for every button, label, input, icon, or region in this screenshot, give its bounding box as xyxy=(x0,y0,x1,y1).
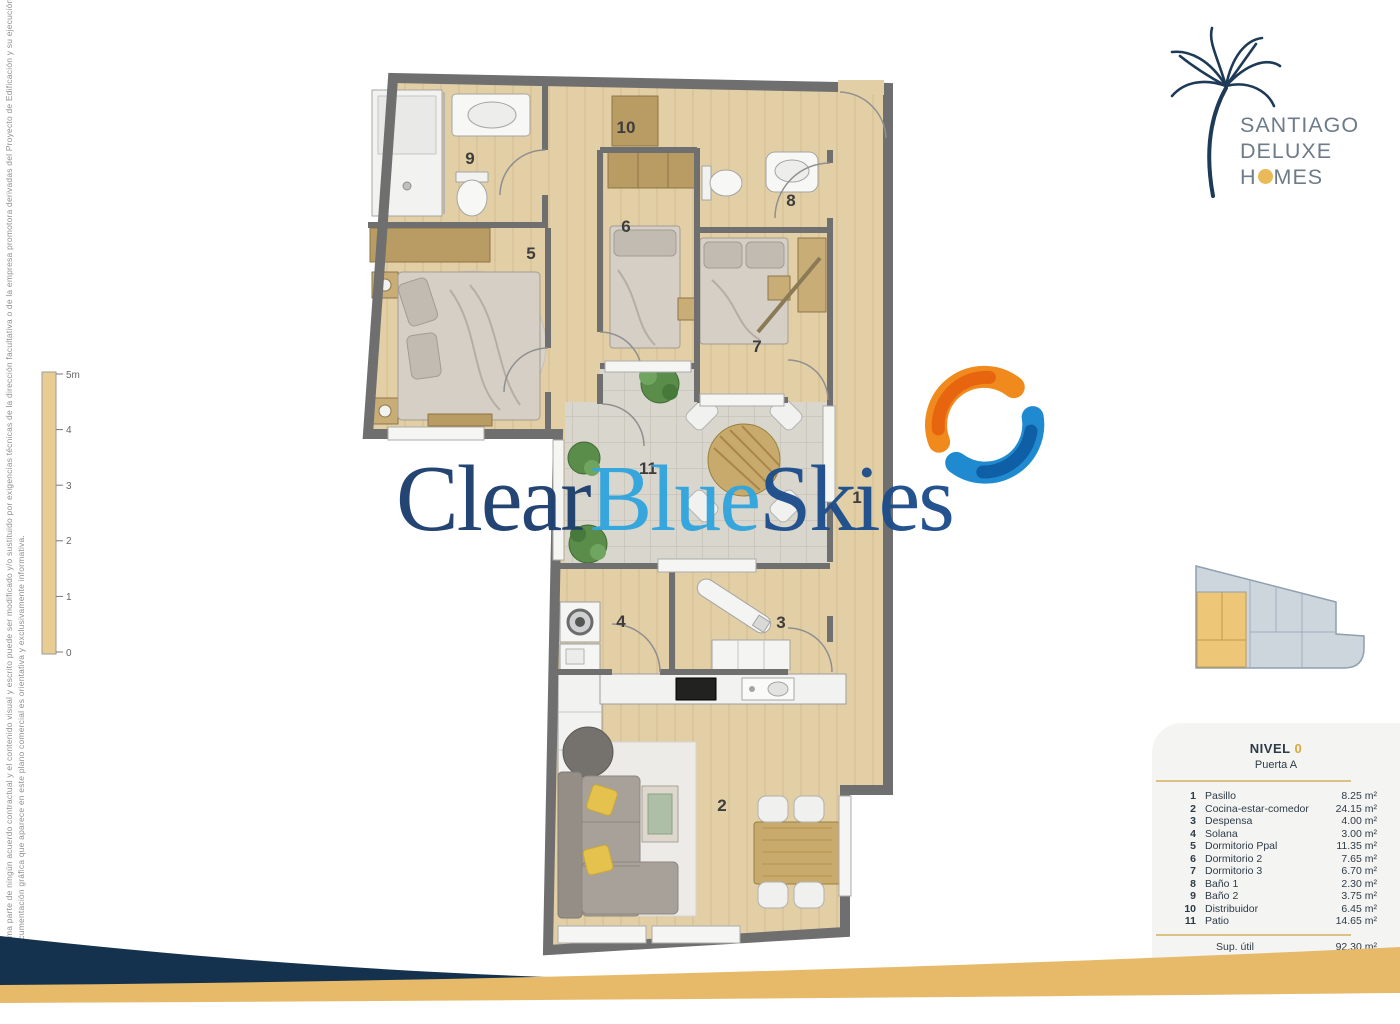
total-built-area: Sup. construida108.45 m² xyxy=(1152,954,1400,967)
door-label: Puerta A xyxy=(1152,759,1400,771)
room-label-8: 8 xyxy=(786,191,795,210)
brand-line-homes: HMES xyxy=(1240,164,1359,190)
brand-logo-text: SANTIAGO DELUXE HMES xyxy=(1240,112,1359,190)
disclaimer-outer: No forma parte de ningún acuerdo contrac… xyxy=(4,0,14,962)
scale-label-0: 0 xyxy=(66,648,72,659)
level-label: NIVEL xyxy=(1250,741,1291,756)
level-number: 0 xyxy=(1294,741,1302,756)
swirl-logo-icon xyxy=(925,366,1044,483)
legend-row: 3Despensa4.00 m² xyxy=(1152,815,1400,828)
legend-row: 7Dormitorio 36.70 m² xyxy=(1152,865,1400,878)
room-label-1: 1 xyxy=(852,488,861,507)
brand-line-santiago: SANTIAGO xyxy=(1240,112,1359,138)
scale-bar: 5m 4 3 2 1 0 xyxy=(42,370,80,659)
site-plan-thumbnail xyxy=(1196,566,1364,668)
room-label-6: 6 xyxy=(621,217,630,236)
gold-dot-icon xyxy=(1258,169,1273,184)
legend-row: 4Solana3.00 m² xyxy=(1152,828,1400,841)
room-label-10: 10 xyxy=(617,118,636,137)
room-label-2: 2 xyxy=(717,796,726,815)
legend-title: NIVEL 0 xyxy=(1152,723,1400,756)
scale-label-5m: 5m xyxy=(66,370,80,381)
legend-divider xyxy=(1156,780,1351,782)
solana-fixtures xyxy=(560,602,600,670)
room-label-5: 5 xyxy=(526,244,535,263)
room-label-4: 4 xyxy=(616,612,626,631)
brand-line-deluxe: DELUXE xyxy=(1240,138,1359,164)
legend-divider xyxy=(1156,934,1351,936)
legend-row: 5Dormitorio Ppal11.35 m² xyxy=(1152,840,1400,853)
scale-label-4: 4 xyxy=(66,425,72,436)
legend-row: 10Distribuidor6.45 m² xyxy=(1152,903,1400,916)
disclaimer-inner: La documentación gráfica que aparece en … xyxy=(16,535,26,962)
scale-label-3: 3 xyxy=(66,481,72,492)
room-label-11: 11 xyxy=(639,459,657,478)
scale-label-2: 2 xyxy=(66,536,72,547)
legend-row: 11Patio14.65 m² xyxy=(1152,915,1400,928)
legend-row: 2Cocina-estar-comedor24.15 m² xyxy=(1152,803,1400,816)
legend-row: 8Baño 12.30 m² xyxy=(1152,878,1400,891)
room-label-9: 9 xyxy=(465,149,474,168)
total-useful-area: Sup. útil92.30 m² xyxy=(1152,941,1400,954)
legend-panel: NIVEL 0 Puerta A 1Pasillo8.25 m² 2Cocina… xyxy=(1152,723,1400,985)
legend-row: 9Baño 23.75 m² xyxy=(1152,890,1400,903)
room-label-3: 3 xyxy=(776,613,785,632)
room-label-7: 7 xyxy=(752,337,761,356)
legend-row: 6Dormitorio 27.65 m² xyxy=(1152,853,1400,866)
legend-row: 1Pasillo8.25 m² xyxy=(1152,790,1400,803)
plant xyxy=(569,525,607,563)
scale-label-1: 1 xyxy=(66,592,72,603)
